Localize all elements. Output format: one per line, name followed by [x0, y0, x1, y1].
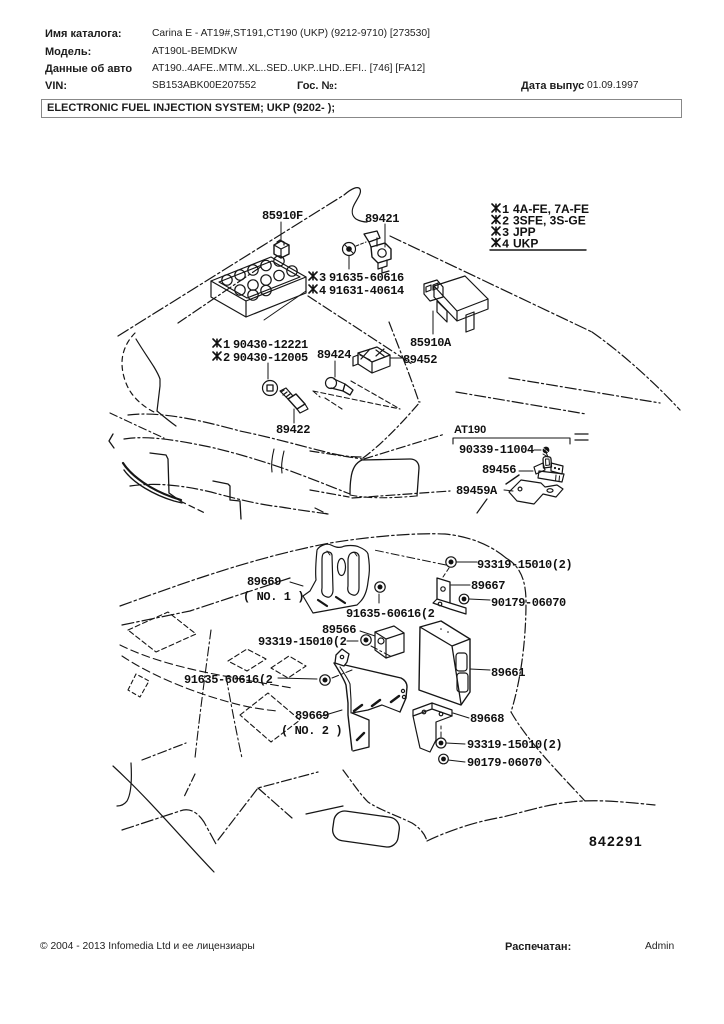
svg-text:3: 3 — [319, 271, 326, 285]
svg-text:89424: 89424 — [317, 348, 351, 362]
svg-text:85910F: 85910F — [262, 209, 303, 223]
svg-text:89459A: 89459A — [456, 484, 498, 498]
svg-text:91635-60616: 91635-60616 — [329, 271, 404, 285]
svg-text:2: 2 — [223, 351, 230, 365]
svg-text:( NO. 1 ): ( NO. 1 ) — [243, 590, 304, 604]
svg-text:93319-15010(2): 93319-15010(2) — [477, 558, 572, 572]
svg-text:89421: 89421 — [365, 212, 399, 226]
svg-text:( NO. 2 ): ( NO. 2 ) — [281, 724, 342, 738]
svg-text:89452: 89452 — [403, 353, 437, 367]
svg-text:91631-40614: 91631-40614 — [329, 284, 404, 298]
svg-text:842291: 842291 — [589, 833, 643, 849]
svg-text:90179-06070: 90179-06070 — [491, 596, 566, 610]
svg-text:90339-11004: 90339-11004 — [459, 443, 534, 457]
svg-text:91635-60616(2: 91635-60616(2 — [184, 673, 273, 687]
svg-text:4: 4 — [319, 284, 326, 298]
svg-text:AT190: AT190 — [454, 424, 486, 436]
svg-text:UKP: UKP — [513, 237, 538, 251]
svg-text:89669: 89669 — [247, 575, 281, 589]
svg-text:93319-15010(2): 93319-15010(2) — [467, 738, 562, 752]
svg-text:1: 1 — [223, 338, 230, 352]
svg-text:85910A: 85910A — [410, 336, 452, 350]
svg-text:89668: 89668 — [470, 712, 504, 726]
svg-text:91635-60616(2: 91635-60616(2 — [346, 607, 435, 621]
svg-text:89661: 89661 — [491, 666, 525, 680]
svg-text:89456: 89456 — [482, 463, 516, 477]
svg-text:89422: 89422 — [276, 423, 310, 437]
svg-text:90430-12221: 90430-12221 — [233, 338, 308, 352]
svg-text:93319-15010(2: 93319-15010(2 — [258, 635, 347, 649]
svg-text:89669: 89669 — [295, 709, 329, 723]
svg-text:89667: 89667 — [471, 579, 505, 593]
svg-text:90179-06070: 90179-06070 — [467, 756, 542, 770]
svg-text:90430-12005: 90430-12005 — [233, 351, 308, 365]
